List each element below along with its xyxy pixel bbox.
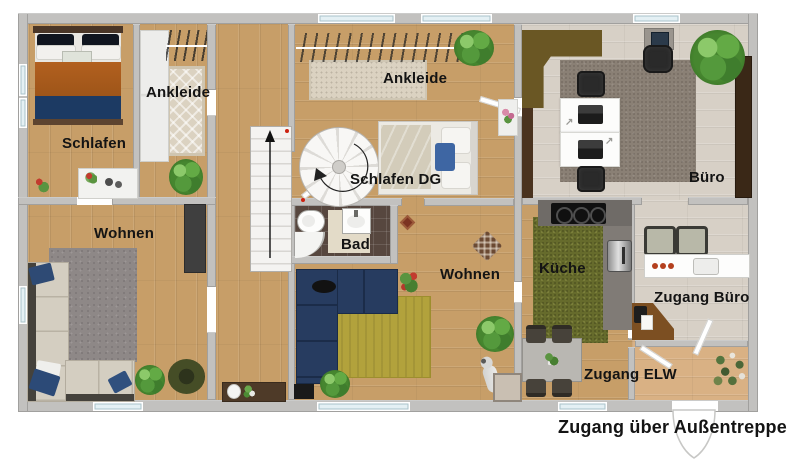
office-wardrobe-left (522, 108, 533, 198)
entry-desk-paper (641, 315, 653, 330)
plant-ankleide (454, 30, 494, 66)
arrow-glyph-1: ↗ (565, 117, 575, 127)
wall-center-office-b (514, 116, 522, 282)
window-bottom-1 (93, 402, 143, 411)
decor-bowl-1 (105, 178, 113, 186)
cooktop (551, 203, 606, 224)
toilet (297, 210, 325, 233)
wall-ankleide-corridor-c (207, 332, 216, 400)
bed-dg-pillow-blue (435, 143, 455, 171)
flower-decor-wall (34, 176, 49, 193)
window-left-2 (19, 98, 27, 128)
room-label-kueche: Küche (539, 261, 586, 278)
plant-wohnen-left (135, 365, 165, 395)
dining-chair-3 (526, 379, 546, 397)
room-label-ankleide-left: Ankleide (146, 85, 210, 102)
room-label-wohnen-center: Wohnen (440, 267, 500, 284)
plant-palm (476, 316, 514, 352)
window-bottom-2 (317, 402, 410, 411)
tv (294, 384, 314, 399)
counter-dot-3 (668, 263, 674, 269)
laptop-1 (578, 105, 603, 124)
bed-blanket-navy (35, 96, 121, 119)
counter-sink (693, 258, 719, 275)
dining-chair-2 (552, 325, 572, 343)
entry-counter (644, 254, 750, 278)
plant-dining-table (541, 349, 561, 369)
entry-chair-2 (676, 226, 708, 256)
rug-ankleide-left (167, 66, 205, 156)
office-desk-2: ↗ (560, 132, 620, 167)
wall-ankleide-corridor-a (207, 24, 216, 90)
side-table-square (493, 373, 522, 402)
pouf-round (168, 359, 205, 394)
decor-bowl-2 (115, 181, 122, 188)
cabinet-tall-dark (184, 204, 206, 273)
office-chair-2 (577, 166, 605, 192)
counter-dot-1 (652, 263, 658, 269)
plant-corner (169, 159, 203, 195)
counter-dot-2 (660, 263, 666, 269)
fridge-handle (622, 247, 625, 264)
room-label-zugang-elw: Zugang ELW (584, 367, 677, 384)
entrance-note: Zugang über Außentreppe (558, 418, 787, 438)
plant-flowering (398, 269, 420, 293)
room-label-schlafen: Schlafen (62, 136, 126, 153)
bed-blanket-orange (35, 62, 121, 96)
wall-bad-wohnen (288, 256, 397, 264)
room-label-zugang-buero: Zugang Büro (654, 290, 750, 307)
wall-center-office-a (514, 24, 522, 98)
lamp-sideboard (227, 384, 241, 399)
stairs-direction-arrow (250, 126, 290, 270)
bed-dg-headboard (471, 122, 477, 194)
flower-decor-dresser (84, 170, 97, 185)
room-label-wohnen-left: Wohnen (94, 226, 154, 243)
window-top-1 (318, 14, 395, 23)
flower-decor-shelf (500, 106, 516, 124)
marker-dot-1 (285, 129, 289, 133)
floor-plan: ↗ ↗ Schlafen Ankleide (0, 0, 800, 471)
dining-chair-4 (552, 379, 572, 397)
bed-schlafen (33, 26, 123, 125)
burner-2 (573, 207, 590, 224)
wall-schlafen-wohnen-a (18, 197, 78, 205)
sofa-tray (312, 280, 336, 293)
bathroom-sink (342, 208, 371, 234)
burner-3 (590, 207, 606, 224)
arrow-glyph-2: ↗ (605, 136, 615, 146)
window-left-3 (19, 286, 27, 324)
door-opening-wohnen-left (207, 287, 216, 332)
sink-faucet (354, 210, 358, 217)
clothes-rod-left (166, 45, 207, 47)
office-desk-1: ↗ (560, 98, 620, 133)
entry-chair-1 (644, 226, 676, 256)
wall-dg-wohnen (424, 198, 514, 206)
window-left-1 (19, 64, 27, 96)
wall-bad-right (390, 205, 398, 264)
room-label-bad: Bad (341, 237, 370, 254)
plant-sideboard (243, 383, 256, 398)
plant-sofa-center (320, 370, 350, 398)
rug-kitchen (533, 217, 608, 343)
window-top-3 (633, 14, 680, 23)
office-chair-3 (643, 45, 673, 73)
clothes-rod-center (296, 47, 472, 49)
office-cabinet-right (735, 56, 752, 198)
room-label-ankleide-center: Ankleide (383, 71, 447, 88)
bed-footboard (33, 119, 123, 125)
toilet-bowl (302, 215, 315, 227)
dining-chair-1 (526, 325, 546, 343)
window-bottom-3 (558, 402, 607, 411)
room-label-schlafen-dg: Schlafen DG (350, 172, 441, 189)
wall-office-kitchen-b (688, 197, 748, 205)
room-label-buero: Büro (689, 170, 725, 187)
plant-dried-elw (706, 344, 754, 390)
bed-headboard (33, 26, 123, 33)
burner-1 (556, 207, 573, 224)
door-opening-kitchen (514, 282, 522, 302)
window-top-2 (421, 14, 492, 23)
fridge (607, 240, 632, 272)
laptop-2 (578, 140, 603, 159)
marker-dot-2 (301, 198, 305, 202)
plant-office (690, 30, 745, 85)
office-chair-1 (577, 71, 605, 97)
